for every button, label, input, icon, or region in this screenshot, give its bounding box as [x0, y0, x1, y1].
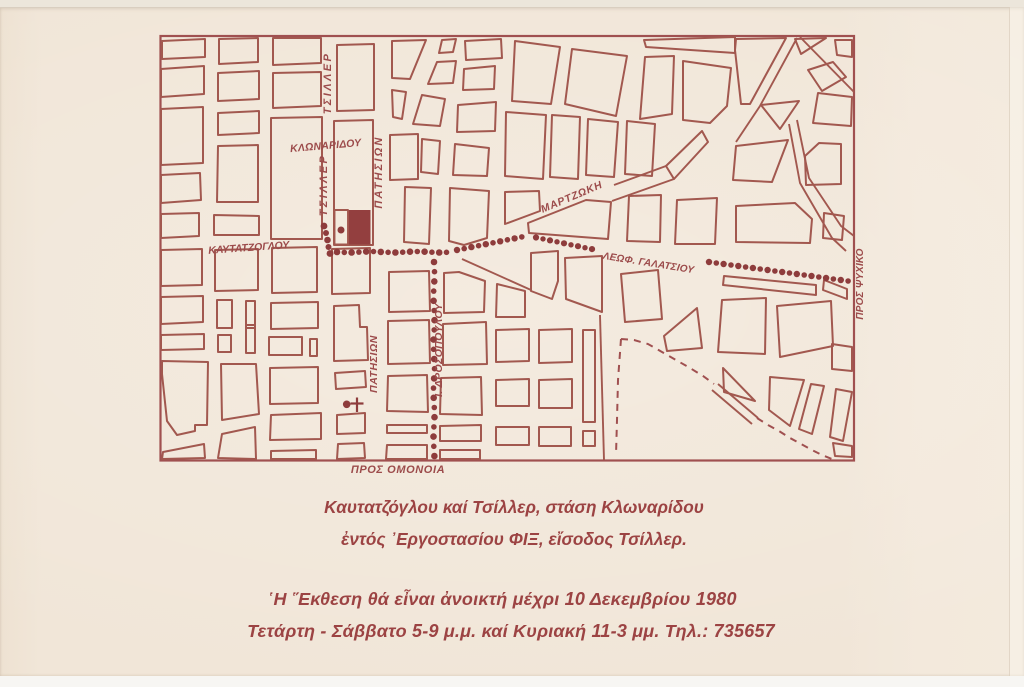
svg-text:ΤΣΙΛΛΕΡ: ΤΣΙΛΛΕΡ: [322, 52, 334, 114]
svg-text:ΚΑΥΤΑΤΖΟΓΛΟΥ: ΚΑΥΤΑΤΖΟΓΛΟΥ: [208, 239, 291, 257]
svg-text:ΚΛΩΝΑΡΙΔΟΥ: ΚΛΩΝΑΡΙΔΟΥ: [290, 137, 363, 155]
svg-text:ΛΕΩΦ. ΓΑΛΑΤΣΙΟΥ: ΛΕΩΦ. ΓΑΛΑΤΣΙΟΥ: [601, 251, 696, 277]
svg-text:Ι. ΔΡΟΣΟΠΟΥΛΟΥ: Ι. ΔΡΟΣΟΠΟΥΛΟΥ: [433, 303, 445, 397]
svg-text:ΠΡΟΣ ΨΥΧΙΚΟ: ΠΡΟΣ ΨΥΧΙΚΟ: [855, 248, 866, 319]
svg-text:ΜΑΡΤΖΩΚΗ: ΜΑΡΤΖΩΚΗ: [539, 179, 604, 216]
svg-text:ΠΑΤΗΣΙΩΝ: ΠΑΤΗΣΙΩΝ: [373, 135, 385, 208]
svg-text:ΠΡΟΣ ΟΜΟΝΟΙΑ: ΠΡΟΣ ΟΜΟΝΟΙΑ: [351, 464, 445, 476]
svg-text:ΠΑΤΗΣΙΩΝ: ΠΑΤΗΣΙΩΝ: [368, 335, 380, 393]
svg-text:ΤΣΙΛΛΕΡ: ΤΣΙΛΛΕΡ: [318, 154, 330, 216]
